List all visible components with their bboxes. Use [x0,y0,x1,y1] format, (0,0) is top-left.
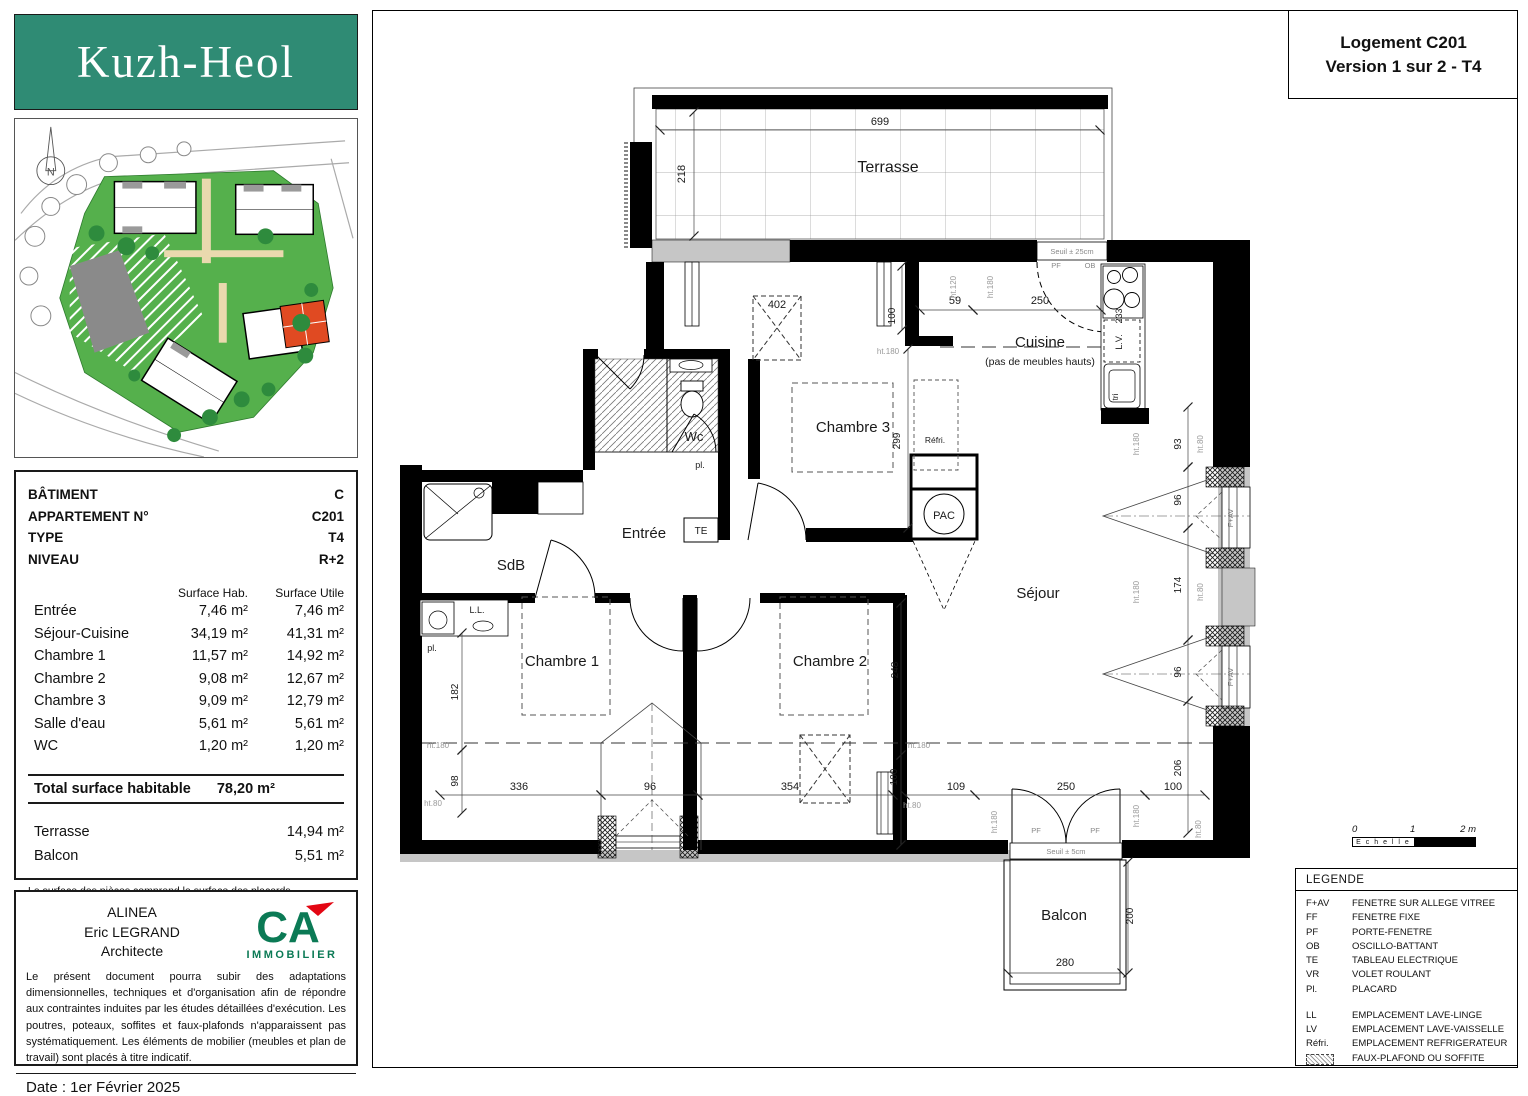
legend-title: LEGENDE [1296,874,1517,891]
surface-row: WC1,20 m²1,20 m² [28,735,344,757]
legend-item: LVEMPLACEMENT LAVE-VAISSELLE [1306,1023,1517,1037]
date: Date : 1er Février 2025 [16,1073,356,1096]
logo: Kuzh-Heol [14,14,358,110]
legend-item: LLEMPLACEMENT LAVE-LINGE [1306,1009,1517,1023]
info-row: BÂTIMENTC [28,484,344,506]
logo-text: Kuzh-Heol [77,36,295,88]
surface-row: Terrasse14,94 m² [28,820,344,845]
info-row: TYPET4 [28,527,344,549]
legend-item: PFPORTE-FENETRE [1306,926,1517,940]
legend-item: FFFENETRE FIXE [1306,911,1517,925]
site-plan-drawing: N [15,119,357,457]
surface-row: Chambre 39,09 m²12,79 m² [28,690,344,712]
scale-bar-graphic: E c h e l l e [1352,837,1476,847]
legend-item: OBOSCILLO-BATTANT [1306,940,1517,954]
title-line1: Logement C201 [1289,31,1518,55]
architect-block: ALINEA Eric LEGRAND Architecte CA IMMOBI… [14,890,358,1066]
surface-row: Séjour-Cuisine34,19 m²41,31 m² [28,623,344,645]
site-plan: N [14,118,358,458]
building-a [114,182,196,234]
apartment-info-table: BÂTIMENTC APPARTEMENT N°C201 TYPET4 NIVE… [14,470,358,880]
scale-bar: 0 1 2 m E c h e l l e [1352,824,1476,847]
info-row: NIVEAUR+2 [28,549,344,571]
surface-row: Chambre 111,57 m²14,92 m² [28,645,344,667]
exterior-surfaces: Terrasse14,94 m² Balcon5,51 m² [28,820,344,869]
legend-item-hatch: FAUX-PLAFOND OU SOFFITE [1306,1052,1517,1070]
disclaimer-text: Le présent document pourra subir des ada… [26,969,346,1067]
surface-row: Entrée7,46 m²7,46 m² [28,600,344,622]
legend-item: F+AVFENETRE SUR ALLEGE VITREE [1306,897,1517,911]
title-line2: Version 1 sur 2 - T4 [1289,55,1518,79]
legend-item: VRVOLET ROULANT [1306,968,1517,982]
legend: LEGENDE F+AVFENETRE SUR ALLEGE VITREE FF… [1295,868,1518,1066]
building-b [236,185,314,235]
legend-item: Pl.PLACARD [1306,983,1517,997]
ca-immobilier-logo: CA IMMOBILIER [238,900,346,961]
legend-item: Réfri.EMPLACEMENT REFRIGERATEUR [1306,1037,1517,1051]
total-surface-row: Total surface habitable78,20 m² [28,774,344,804]
scale-ticks: 0 1 2 m [1352,824,1476,837]
svg-text:N: N [47,167,55,179]
info-row: APPARTEMENT N°C201 [28,506,344,528]
surface-row: Salle d'eau5,61 m²5,61 m² [28,713,344,735]
surface-row: Chambre 29,08 m²12,67 m² [28,668,344,690]
architect-names: ALINEA Eric LEGRAND Architecte [26,900,238,962]
title-block: Logement C201 Version 1 sur 2 - T4 [1288,11,1518,99]
hatch-swatch-icon [1306,1054,1334,1065]
surface-column-headers: Surface Hab.Surface Utile [28,586,344,600]
legend-item: TETABLEAU ELECTRIQUE [1306,954,1517,968]
floorplan-sheet: { "header": { "logo": "Kuzh-Heol", "titl… [0,0,1528,1079]
surface-row: Balcon5,51 m² [28,844,344,869]
svg-text:CA: CA [256,903,320,948]
